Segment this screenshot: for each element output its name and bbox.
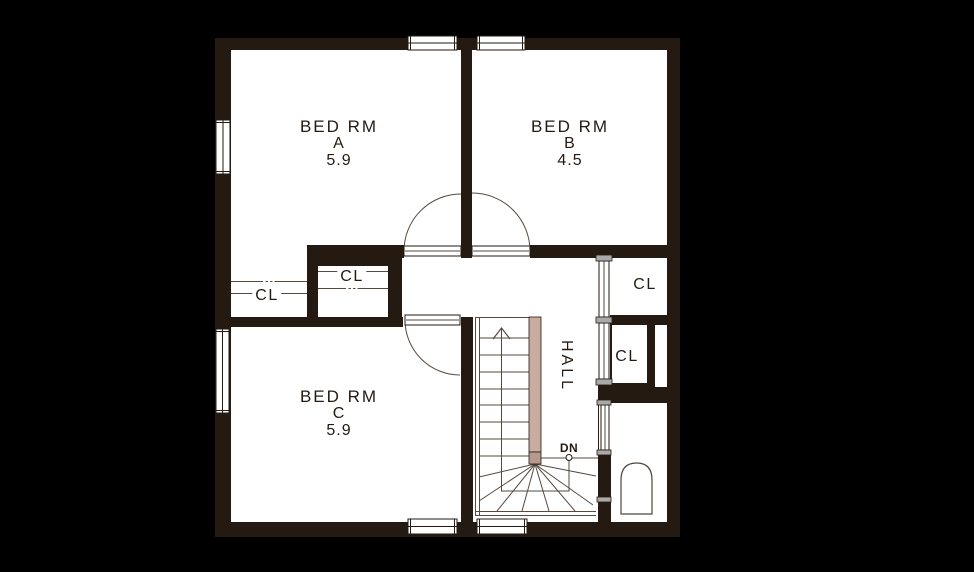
bedroom-a-label: BED RM A 5.9: [300, 118, 378, 170]
stair-handrail: [529, 317, 541, 464]
bedroom-a-area: 5.9: [300, 152, 378, 170]
window-left-upper: [216, 120, 230, 174]
sliding-door-cap-middle: [596, 317, 612, 323]
window-top-right: [477, 36, 525, 50]
closet-label-hall-lower: CL: [612, 348, 641, 366]
bedroom-b-area: 4.5: [531, 152, 609, 170]
bedroom-b-name: BED RM: [531, 118, 609, 135]
stair-handrail-cap: [529, 452, 541, 464]
bedroom-a-letter: A: [300, 135, 378, 152]
bedroom-c-area: 5.9: [300, 422, 378, 440]
window-top-left: [408, 36, 457, 50]
sliding-door-cap-bottom: [596, 379, 612, 385]
bedroom-b-label: BED RM B 4.5: [531, 118, 609, 170]
bedroom-c-letter: C: [300, 405, 378, 422]
bedroom-c-name: BED RM: [300, 388, 378, 405]
floor-plan-drawing: [0, 0, 974, 572]
sliding-door-cap-top: [596, 255, 612, 261]
window-bottom-right: [477, 519, 527, 534]
window-left-lower: [216, 329, 229, 413]
window-bottom-left: [408, 519, 457, 534]
toilet-fixture: [621, 463, 652, 514]
bedroom-a-name: BED RM: [300, 118, 378, 135]
wall-toilet-pocket: [598, 453, 606, 500]
closet-label-hall-upper: CL: [630, 276, 659, 294]
floor-plan-canvas: BED RM A 5.9 BED RM B 4.5 BED RM C 5.9 C…: [0, 0, 974, 572]
wall-closet-divider: [307, 245, 318, 327]
bedroom-c-label: BED RM C 5.9: [300, 388, 378, 440]
pipe-space: [655, 325, 667, 387]
hall-corridor-floor: [402, 258, 598, 317]
wall-closet-hall: [388, 245, 402, 327]
stairs-down-label: DN: [560, 441, 578, 455]
closet-label-bed-a-left: CL: [252, 287, 281, 305]
wall-between-bedrooms: [461, 50, 472, 258]
hall-label: HALL: [557, 340, 575, 392]
closet-label-bed-a-right: CL: [337, 268, 366, 286]
stair-direction-start-circle: [566, 455, 572, 461]
bedroom-b-letter: B: [531, 135, 609, 152]
